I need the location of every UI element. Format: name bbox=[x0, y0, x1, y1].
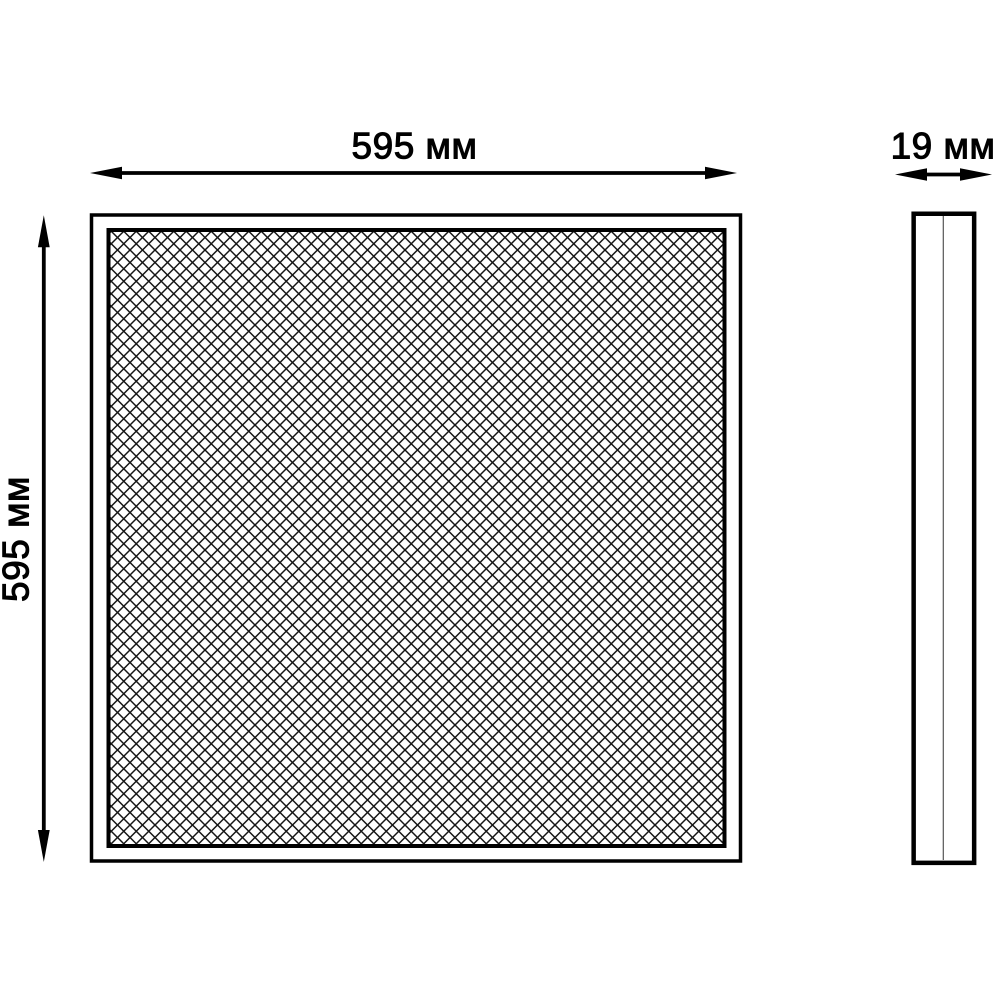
svg-text:19 мм: 19 мм bbox=[891, 126, 996, 167]
svg-text:595 мм: 595 мм bbox=[0, 476, 37, 602]
svg-text:595 мм: 595 мм bbox=[352, 126, 478, 167]
